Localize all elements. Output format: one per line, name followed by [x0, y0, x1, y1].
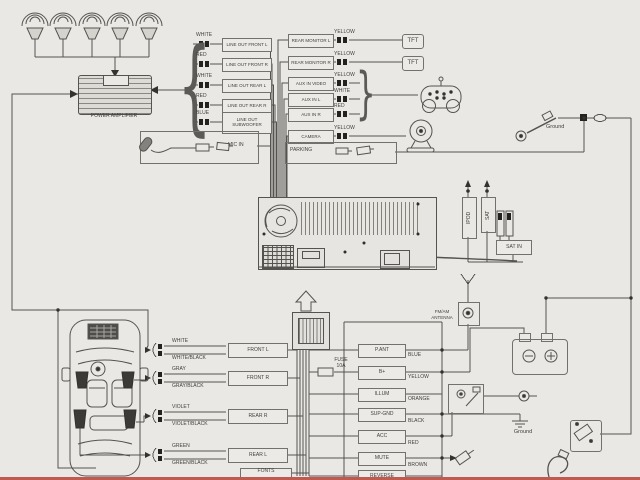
antenna-jack-box	[458, 302, 480, 326]
car-to-row-wires	[80, 346, 148, 455]
sat-in-box: SAT IN	[496, 240, 532, 255]
battery-post	[519, 333, 531, 342]
connector-b-inner	[302, 251, 320, 259]
speaker-wire-bottom: GRAY/BLACK	[172, 384, 204, 390]
speaker-wire-top: VIOLET	[172, 405, 190, 411]
tft-monitor: TFT	[402, 56, 424, 71]
row-bracket-icon	[153, 343, 156, 462]
ground-bottom-label: Ground	[505, 429, 541, 435]
bullet-connector-icon	[594, 115, 606, 122]
harness-connector-hatch	[298, 318, 324, 344]
speaker-bus-wires	[35, 44, 149, 70]
harness-box: B+	[358, 366, 406, 380]
av-color: YELLOW	[334, 126, 355, 132]
speaker-wire-bottom: VIOLET/BLACK	[172, 422, 208, 428]
ipod-box: IPOD	[462, 197, 477, 239]
lineout-color: WHITE	[196, 33, 212, 39]
speaker-box: FRONT L	[228, 343, 288, 358]
av-color: YELLOW	[334, 30, 355, 36]
lineout-color: BLUE	[196, 111, 209, 117]
av-color: YELLOW	[334, 73, 355, 79]
harness-box: ILLUM	[358, 388, 406, 402]
relay-box	[570, 420, 602, 452]
harness-color: BLACK	[408, 419, 424, 425]
lineout-brace: {	[178, 34, 211, 138]
av-box: AUX IN L	[288, 93, 334, 107]
harness-box: P.ANT	[358, 344, 406, 358]
harness-color: ORANGE	[408, 397, 430, 403]
tft-monitor: TFT	[402, 34, 424, 49]
speaker-box: FRONT R	[228, 371, 288, 386]
parking-label: PARKING	[290, 148, 312, 154]
harness-color: YELLOW	[408, 375, 429, 381]
av-box: REAR MONITOR L	[288, 34, 334, 48]
fuse-label-2: 10A	[329, 364, 353, 370]
lineout-box: LINE OUT FRONT L	[222, 38, 272, 52]
amplifier-notch	[103, 75, 129, 86]
av-bundle-wires	[278, 40, 288, 197]
ground-top-label: Ground	[546, 124, 564, 130]
lineout-box: LINE OUT REAR L	[222, 79, 272, 93]
harness-color: BROWN	[408, 463, 427, 469]
av-color: YELLOW	[334, 52, 355, 58]
harness-box: MUTE	[358, 452, 406, 466]
antenna-label-2: ANTENNA	[428, 316, 456, 321]
mic-in-label: MIC IN	[228, 143, 244, 149]
av-box: REAR MONITOR R	[288, 56, 334, 70]
speaker-wire-bottom: WHITE/BLACK	[172, 356, 206, 362]
av-box: AUX IN VIDEO	[288, 77, 334, 91]
harness-box: SUP-GND	[358, 408, 406, 422]
antenna-socket-inner	[384, 253, 400, 265]
amplifier-label: POWER AMPLIFIER	[56, 114, 172, 120]
harness-color: BLUE	[408, 353, 421, 359]
harness-socket-icon	[262, 245, 294, 269]
lineout-color: WHITE	[196, 74, 212, 80]
wiring-diagram: POWER AMPLIFIER { WHITE RED WHITE RED BL…	[0, 0, 640, 480]
speaker-wire-top: GRAY	[172, 367, 186, 373]
lineout-box: LINE OUT REAR R	[222, 99, 272, 113]
ignition-switch-box	[448, 384, 484, 414]
heatsink-fins-icon	[301, 202, 419, 235]
battery-post	[541, 333, 553, 342]
lineout-color: RED	[196, 94, 207, 100]
av-color: WHITE	[334, 89, 350, 95]
sat-box: SAT	[481, 197, 496, 233]
speaker-wire-top: WHITE	[172, 339, 188, 345]
speaker-box: REAR L	[228, 448, 288, 463]
speaker-wire-bottom: GREEN/BLACK	[172, 461, 208, 467]
battery-icon	[512, 339, 568, 375]
harness-color: RED	[408, 441, 419, 447]
lineout-box: LINE OUT FRONT R	[222, 58, 272, 72]
aux-brace: }	[356, 66, 376, 122]
speaker-wire-top: GREEN	[172, 444, 190, 450]
av-box: AUX IN R	[288, 108, 334, 122]
harness-box: ACC	[358, 430, 406, 444]
av-color: RED	[334, 104, 345, 110]
lineout-color: RED	[196, 53, 207, 59]
av-right-wires	[332, 40, 631, 333]
speaker-box: REAR R	[228, 409, 288, 424]
